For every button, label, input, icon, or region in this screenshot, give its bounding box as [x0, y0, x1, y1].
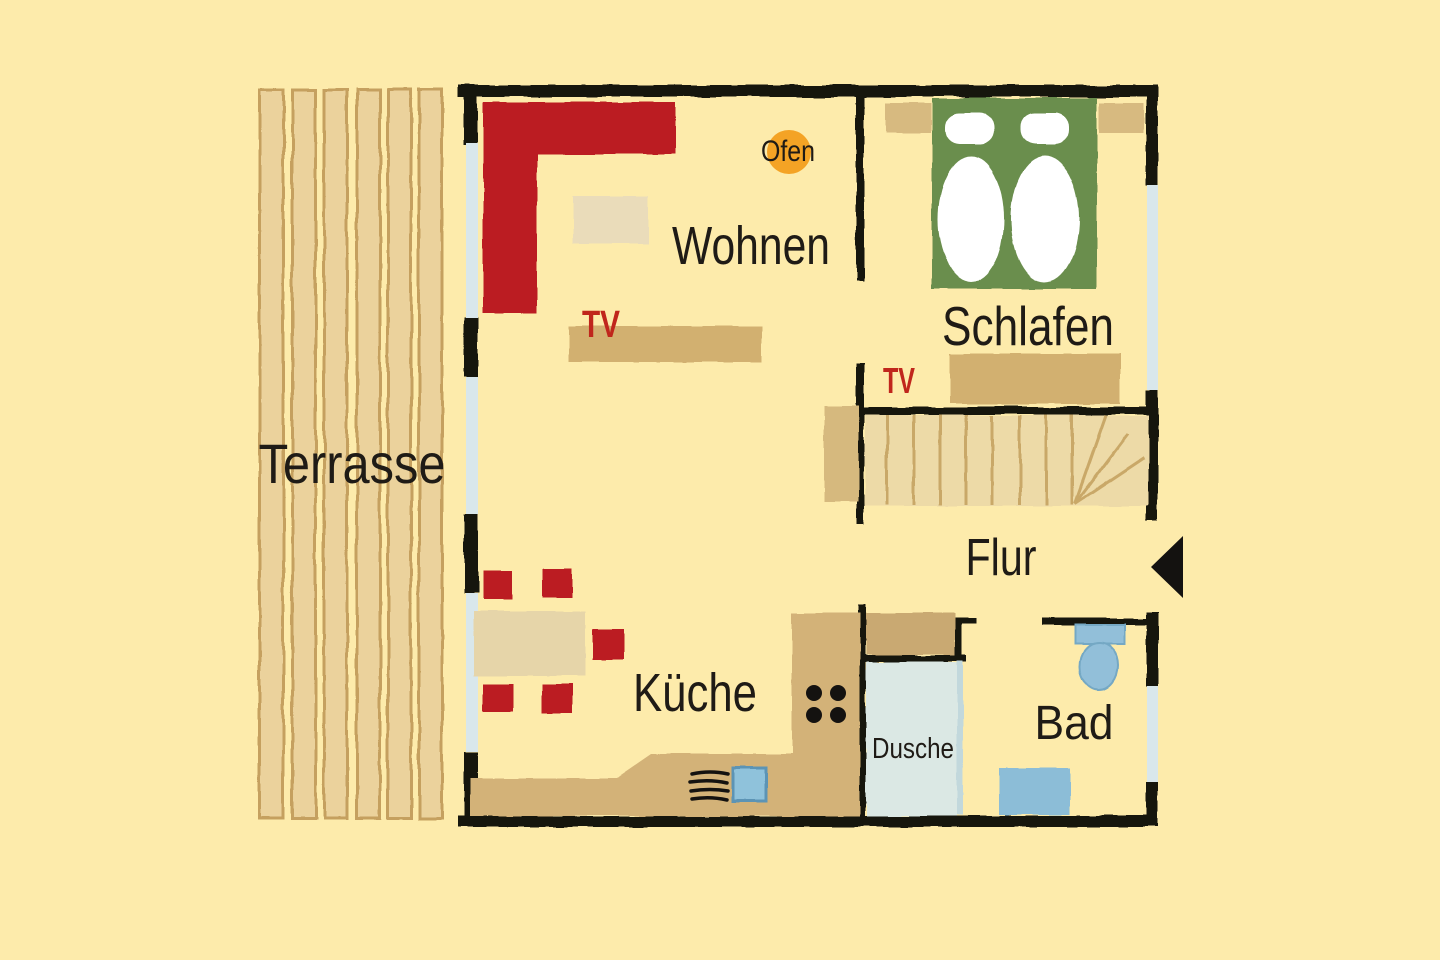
svg-text:Wohnen: Wohnen: [672, 216, 830, 276]
svg-text:Ofen: Ofen: [761, 135, 815, 168]
svg-text:Bad: Bad: [1035, 697, 1114, 750]
svg-text:Küche: Küche: [633, 663, 757, 723]
svg-text:TV: TV: [883, 360, 915, 401]
svg-text:Dusche: Dusche: [872, 733, 954, 765]
svg-text:TV: TV: [582, 304, 621, 346]
svg-text:Terrasse: Terrasse: [259, 432, 446, 495]
svg-text:Schlafen: Schlafen: [942, 295, 1114, 357]
svg-text:Flur: Flur: [966, 529, 1037, 587]
